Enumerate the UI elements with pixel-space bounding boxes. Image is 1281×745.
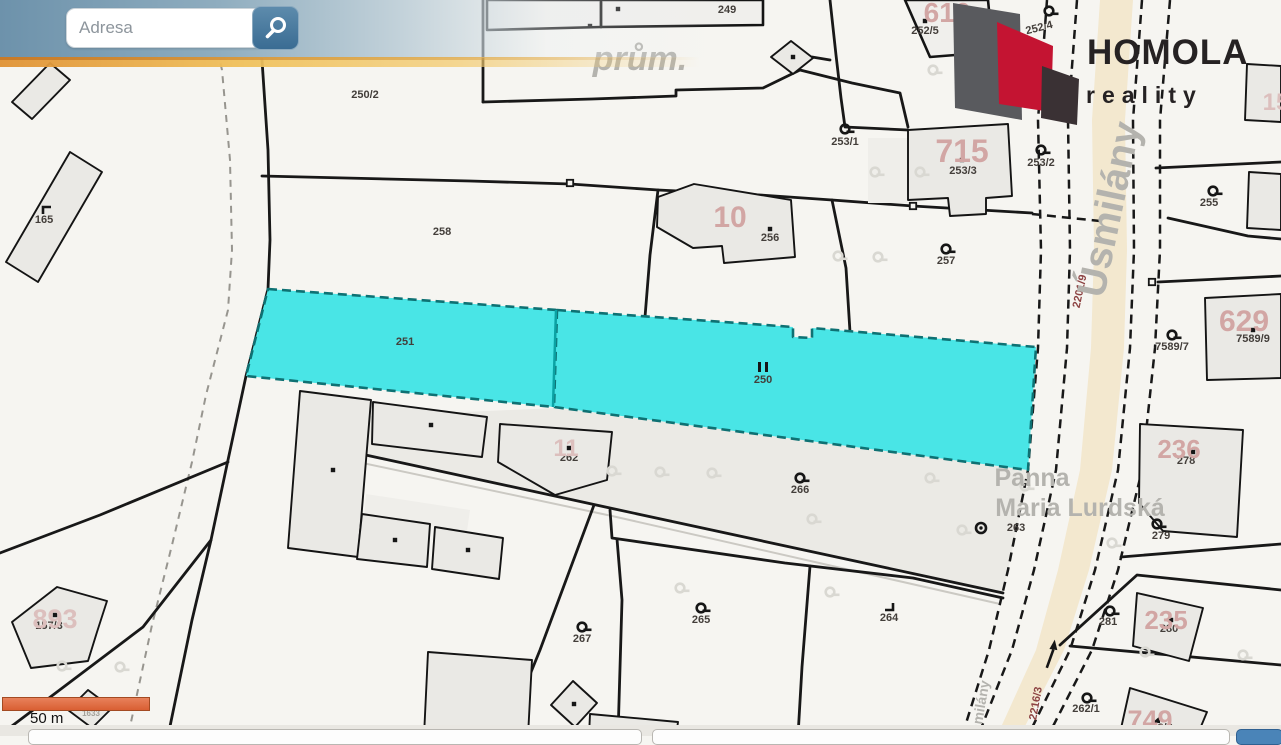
map-label-262/1: 262/1 bbox=[1072, 703, 1100, 715]
map-label-10: 10 bbox=[713, 201, 746, 234]
boundary-node-icon bbox=[1149, 279, 1155, 285]
building-dot-icon bbox=[791, 55, 795, 59]
bottom-toolbar-button[interactable] bbox=[1236, 729, 1281, 745]
map-label-250/2: 250/2 bbox=[351, 89, 379, 101]
map-scale-bar bbox=[2, 697, 150, 711]
map-label-236: 236 bbox=[1157, 434, 1200, 464]
highlighted-route-band-edge bbox=[0, 57, 700, 60]
map-label-Maria Lurdská: Maria Lurdská bbox=[995, 494, 1165, 522]
map-label-253/2: 253/2 bbox=[1027, 157, 1055, 169]
map-label-250: 250 bbox=[754, 374, 772, 386]
map-label-263: 263 bbox=[1007, 522, 1025, 534]
boundary-node-icon bbox=[567, 180, 573, 186]
building-dot-icon bbox=[331, 468, 335, 472]
map-label-256: 256 bbox=[761, 232, 779, 244]
building-dot-icon bbox=[393, 538, 397, 542]
search-button[interactable] bbox=[252, 6, 299, 50]
map-label-7589/7: 7589/7 bbox=[1155, 341, 1189, 353]
map-label-265: 265 bbox=[692, 614, 710, 626]
map-label-165: 165 bbox=[35, 214, 53, 226]
search-input[interactable] bbox=[66, 8, 264, 48]
map-label-235: 235 bbox=[1144, 605, 1187, 635]
map-label-264: 264 bbox=[880, 612, 899, 624]
building-dot-icon bbox=[768, 227, 772, 231]
cadastral-map[interactable]: 250/2165258249252/5252/4253/1253/3253/22… bbox=[0, 0, 1281, 736]
building-annex-faint bbox=[868, 138, 908, 203]
map-label-Panna: Panna bbox=[994, 464, 1070, 492]
building-bottom-1 bbox=[424, 652, 532, 736]
map-label-279: 279 bbox=[1152, 530, 1170, 542]
boundary-node-icon bbox=[910, 203, 916, 209]
map-label-715: 715 bbox=[935, 133, 988, 169]
map-label-253/1: 253/1 bbox=[831, 136, 859, 148]
bottom-toolbar-field-2[interactable] bbox=[652, 729, 1230, 745]
search-icon bbox=[263, 15, 289, 41]
map-label-258: 258 bbox=[433, 226, 451, 238]
map-label-251: 251 bbox=[396, 336, 414, 348]
map-label-15: 15 bbox=[1263, 89, 1281, 116]
bottom-toolbar-field-1[interactable] bbox=[28, 729, 642, 745]
building-dot-icon bbox=[429, 423, 433, 427]
map-label-257: 257 bbox=[937, 255, 955, 267]
building-cluster-a bbox=[288, 391, 371, 557]
map-label-629: 629 bbox=[1219, 305, 1269, 338]
map-label-255: 255 bbox=[1200, 197, 1218, 209]
map-label-267: 267 bbox=[573, 633, 591, 645]
building-dot-icon bbox=[466, 548, 470, 552]
map-label-616: 616 bbox=[924, 0, 971, 28]
map-label-11: 11 bbox=[553, 435, 578, 462]
map-label-281: 281 bbox=[1099, 616, 1117, 628]
building-dot-icon bbox=[572, 702, 576, 706]
map-label-266: 266 bbox=[791, 484, 809, 496]
building-topright-b bbox=[1247, 172, 1281, 230]
map-label-893: 893 bbox=[32, 604, 77, 634]
